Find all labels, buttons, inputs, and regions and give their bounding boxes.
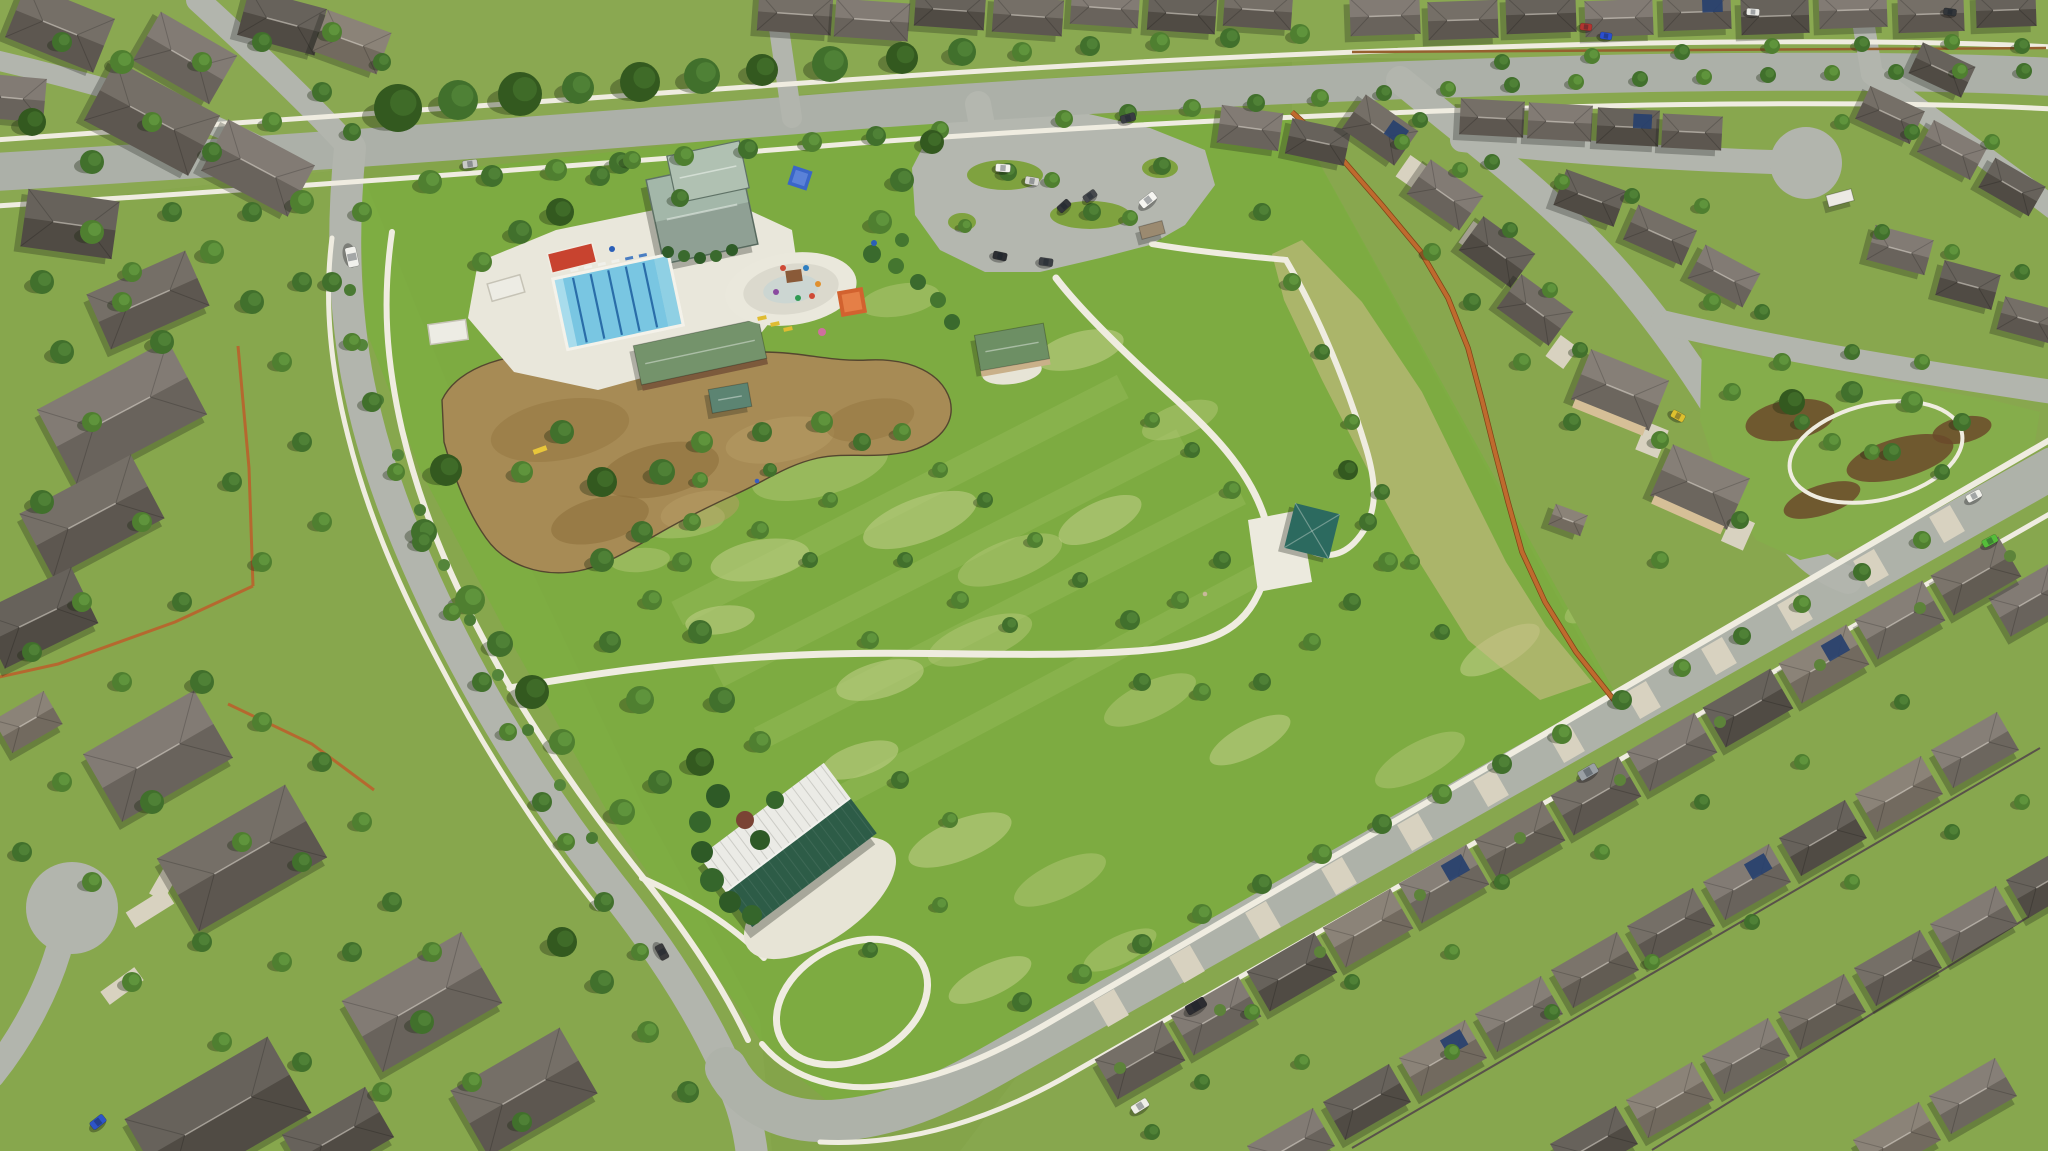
tree-highlight (1429, 245, 1439, 255)
tree-highlight (1765, 69, 1774, 78)
tree-highlight (573, 76, 591, 94)
tree-highlight (488, 168, 500, 180)
house-roof (1578, 0, 1653, 43)
tree-highlight (1879, 226, 1888, 235)
tree-highlight (697, 474, 706, 483)
tree-highlight (329, 274, 340, 285)
tree-highlight (1219, 553, 1229, 563)
tree-highlight (947, 814, 956, 823)
shrub (694, 252, 706, 264)
tree-highlight (1779, 355, 1789, 365)
tree-highlight (552, 162, 564, 174)
tree-highlight (1909, 126, 1918, 135)
tree-highlight (1127, 612, 1138, 623)
tree-highlight (1701, 71, 1710, 80)
tree-highlight (129, 264, 140, 275)
house-roof (827, 0, 910, 48)
tree-highlight (148, 793, 161, 806)
tree-highlight (1259, 675, 1269, 685)
shrub (944, 314, 960, 330)
tree-highlight (558, 423, 571, 436)
shrub (1814, 659, 1826, 671)
tree-highlight (1848, 384, 1860, 396)
tree-highlight (539, 794, 550, 805)
tree-highlight (1139, 675, 1149, 685)
tree-highlight (937, 464, 946, 473)
tree-highlight (957, 593, 967, 603)
tree-highlight (27, 111, 42, 126)
shrub (522, 724, 534, 736)
tree-highlight (465, 588, 482, 605)
tree-highlight (1577, 344, 1586, 353)
tree-highlight (756, 734, 768, 746)
tree-highlight (1379, 486, 1388, 495)
house-roof (1499, 0, 1576, 40)
tree-highlight (1599, 846, 1608, 855)
tree-highlight (1679, 46, 1688, 55)
shrub (414, 504, 426, 516)
shrub (742, 905, 762, 925)
tree-highlight (899, 425, 909, 435)
house-roof (1343, 0, 1420, 42)
cul-de-sac-bulb (26, 862, 118, 954)
tree-highlight (519, 1114, 530, 1125)
tree-highlight (1399, 136, 1408, 145)
tree-highlight (1297, 26, 1308, 37)
tree-highlight (1829, 435, 1839, 445)
tree-highlight (759, 424, 770, 435)
tree-highlight (677, 191, 687, 201)
shrub (863, 245, 881, 263)
trash-bin (871, 240, 877, 246)
house-roof (1421, 0, 1498, 46)
tree-highlight (1849, 346, 1858, 355)
tree-highlight (2021, 65, 2030, 74)
tree-highlight (656, 773, 669, 786)
tree-highlight (319, 84, 330, 95)
tree-highlight (38, 493, 51, 506)
tree-highlight (1919, 356, 1928, 365)
tree-highlight (818, 414, 830, 426)
tree-highlight (1149, 1126, 1158, 1135)
tree-highlight (1549, 1006, 1558, 1015)
tree-highlight (208, 243, 221, 256)
tree-highlight (598, 551, 611, 564)
shade-canopy (428, 319, 468, 344)
tree-highlight (658, 462, 672, 476)
tree-highlight (118, 53, 131, 66)
tree-highlight (757, 523, 767, 533)
tree-highlight (827, 494, 836, 503)
tree-highlight (1149, 414, 1158, 423)
tree-highlight (119, 674, 130, 685)
tree-highlight (695, 751, 710, 766)
tree-highlight (1519, 355, 1529, 365)
tree-highlight (928, 133, 941, 146)
tree-highlight (1919, 533, 1929, 543)
tree-highlight (1547, 284, 1556, 293)
tree-highlight (982, 494, 991, 503)
tree-highlight (1657, 433, 1667, 443)
tree-highlight (1157, 34, 1168, 45)
tree-highlight (1199, 906, 1210, 917)
tree-highlight (1199, 1076, 1208, 1085)
tree-highlight (684, 1084, 696, 1096)
house-roof (1891, 0, 1964, 39)
tree-highlight (1709, 295, 1719, 305)
tree-highlight (248, 293, 261, 306)
tree-highlight (1729, 385, 1739, 395)
tree-highlight (873, 128, 884, 139)
tree-highlight (1379, 816, 1390, 827)
tree-highlight (89, 414, 100, 425)
tree-highlight (79, 594, 90, 605)
spray-feature (780, 265, 786, 271)
tree-highlight (807, 554, 816, 563)
tree-highlight (897, 46, 915, 64)
house-roof (1210, 104, 1283, 157)
tree-highlight (1889, 445, 1899, 455)
tree-highlight (129, 974, 140, 985)
shrub (492, 669, 504, 681)
shrub (766, 791, 784, 809)
house-roof (1812, 0, 1887, 35)
house-roof (1140, 0, 1217, 40)
tree-highlight (298, 193, 311, 206)
house-roof (985, 0, 1064, 42)
tree-highlight (1289, 275, 1299, 285)
tree-highlight (1349, 976, 1358, 985)
tree-highlight (633, 67, 655, 89)
tree-highlight (1469, 295, 1479, 305)
tree-highlight (558, 732, 572, 746)
tree-highlight (555, 201, 570, 216)
tree-highlight (479, 254, 490, 265)
tree-highlight (1737, 513, 1747, 523)
tree-highlight (390, 90, 416, 116)
tree-highlight (259, 554, 270, 565)
shrub (1114, 1062, 1126, 1074)
shrub (1414, 889, 1426, 901)
shrub (888, 258, 904, 274)
house-roof (14, 188, 120, 265)
shrub (586, 832, 598, 844)
house-roof (1521, 102, 1593, 148)
water-bucket-tower (785, 269, 803, 283)
tree-highlight (897, 773, 907, 783)
tree-highlight (19, 844, 30, 855)
tree-highlight (698, 434, 710, 446)
tree-highlight (359, 814, 370, 825)
tree-highlight (1019, 44, 1030, 55)
tree-highlight (1079, 966, 1090, 977)
tree-highlight (963, 221, 971, 229)
tree-highlight (449, 605, 459, 615)
tree-highlight (429, 944, 440, 955)
tree-highlight (1839, 116, 1848, 125)
tree-highlight (681, 148, 692, 159)
shrub (678, 250, 690, 262)
trash-bin (609, 246, 615, 252)
shrub (930, 292, 946, 308)
tree-highlight (1061, 112, 1071, 122)
shrub (1214, 1004, 1226, 1016)
tree-highlight (451, 85, 473, 107)
tree-highlight (1657, 553, 1667, 563)
tree-highlight (629, 153, 639, 163)
shrub (1314, 946, 1326, 958)
tree-highlight (1199, 685, 1209, 695)
tree-highlight (1445, 83, 1454, 92)
house-roof (907, 0, 986, 36)
tree-highlight (1949, 36, 1958, 45)
shrub (910, 274, 926, 290)
tree-highlight (1159, 159, 1169, 169)
tree-highlight (469, 1074, 480, 1085)
tree-highlight (88, 153, 101, 166)
shrub (1514, 832, 1526, 844)
tree-highlight (1989, 136, 1998, 145)
tree-highlight (1699, 796, 1708, 805)
tree-highlight (638, 524, 650, 536)
tree-highlight (119, 294, 130, 305)
tree-highlight (299, 1054, 310, 1065)
tree-highlight (1799, 597, 1809, 607)
tree-highlight (229, 474, 240, 485)
shrub (1614, 774, 1626, 786)
tree-highlight (1439, 626, 1448, 635)
tree-highlight (393, 465, 403, 475)
cul-de-sac-bulb (1770, 127, 1842, 199)
tree-highlight (1457, 164, 1466, 173)
tree-highlight (319, 754, 330, 765)
tree-highlight (299, 274, 310, 285)
shrub (691, 841, 713, 863)
tree-highlight (1259, 876, 1270, 887)
shrub (438, 559, 450, 571)
house-roof (1655, 113, 1723, 156)
tree-highlight (1859, 565, 1869, 575)
tree-highlight (601, 894, 612, 905)
tree-highlight (1499, 756, 1510, 767)
tree-highlight (1189, 101, 1199, 111)
shrub (689, 811, 711, 833)
tree-highlight (1409, 556, 1418, 565)
tree-highlight (299, 854, 310, 865)
tree-highlight (1032, 534, 1041, 543)
solar-panels (1702, 0, 1723, 13)
house-roof (1063, 0, 1140, 34)
tree-highlight (259, 714, 270, 725)
person (755, 479, 760, 484)
shrub (719, 891, 741, 913)
shrub (1914, 602, 1926, 614)
spray-feature (773, 289, 779, 295)
tree-highlight (2019, 266, 2028, 275)
tree-highlight (179, 594, 190, 605)
tree-highlight (824, 50, 844, 70)
tree-highlight (1077, 574, 1086, 583)
tree-highlight (1499, 876, 1508, 885)
shrub (726, 244, 738, 256)
tree-highlight (158, 333, 171, 346)
tree-highlight (876, 213, 889, 226)
tree-highlight (526, 679, 545, 698)
tree-highlight (1869, 446, 1878, 455)
tree-highlight (1637, 73, 1646, 82)
tree-highlight (319, 514, 330, 525)
tree-highlight (1349, 595, 1359, 605)
tree-highlight (369, 394, 380, 405)
tree-highlight (1619, 692, 1630, 703)
tree-highlight (1259, 205, 1269, 215)
tree-highlight (937, 123, 947, 133)
tree-highlight (59, 34, 70, 45)
tree-highlight (1559, 726, 1570, 737)
tree-highlight (745, 141, 756, 152)
tree-highlight (635, 689, 650, 704)
aerial-photo-suburban-park (0, 0, 2048, 1151)
tree-highlight (1569, 415, 1579, 425)
tree-highlight (58, 343, 71, 356)
tree-highlight (902, 554, 911, 563)
tree-highlight (1087, 38, 1098, 49)
house-roof (750, 0, 833, 42)
tree-highlight (1349, 416, 1358, 425)
tree-highlight (516, 223, 529, 236)
tree-highlight (199, 54, 210, 65)
tree-highlight (88, 223, 101, 236)
tree-highlight (1007, 619, 1016, 628)
tree-highlight (557, 930, 574, 947)
tree-highlight (89, 874, 100, 885)
tree-highlight (1381, 87, 1390, 96)
house-roof (1656, 0, 1731, 37)
tree-highlight (1759, 306, 1768, 315)
tree-highlight (1829, 67, 1838, 76)
tree-highlight (1049, 174, 1058, 183)
tree-highlight (1489, 156, 1498, 165)
house-roof (1969, 0, 2036, 34)
tree-highlight (1769, 40, 1778, 49)
tree-highlight (1139, 936, 1150, 947)
tree-highlight (1319, 346, 1328, 355)
tree-highlight (1385, 554, 1396, 565)
tree-highlight (389, 894, 400, 905)
person (1203, 592, 1208, 597)
shrub (392, 449, 404, 461)
tree-highlight (1345, 462, 1356, 473)
tree-highlight (898, 171, 911, 184)
tree-highlight (718, 690, 732, 704)
tree-highlight (1509, 79, 1518, 88)
tree-highlight (1253, 96, 1263, 106)
shrub (464, 614, 476, 626)
tree-highlight (1189, 444, 1198, 453)
tree-highlight (359, 204, 370, 215)
tree-highlight (1299, 1056, 1308, 1065)
house-roof (1734, 0, 1809, 41)
tree-highlight (1739, 629, 1749, 639)
tree-highlight (1507, 224, 1516, 233)
tree-highlight (279, 954, 290, 965)
tree-highlight (279, 354, 290, 365)
tree-highlight (563, 835, 573, 845)
tree-highlight (239, 834, 250, 845)
tree-highlight (259, 34, 270, 45)
tree-highlight (679, 554, 690, 565)
solar-panels (1633, 114, 1652, 129)
tree-highlight (418, 1013, 431, 1026)
tree-highlight (597, 470, 614, 487)
tree-highlight (1559, 176, 1568, 185)
tree-highlight (867, 633, 877, 643)
house-roof (1453, 98, 1525, 144)
shrub (710, 250, 722, 262)
tree-highlight (29, 644, 40, 655)
tree-highlight (139, 514, 150, 525)
tree-highlight (644, 1024, 656, 1036)
tree-highlight (518, 464, 530, 476)
tree-highlight (299, 434, 310, 445)
tree-highlight (1127, 212, 1136, 221)
shrub (750, 830, 770, 850)
canopy-top (842, 292, 863, 313)
tree-highlight (479, 674, 490, 685)
tree-highlight (269, 114, 280, 125)
tree-highlight (426, 173, 439, 186)
tree-highlight (1449, 1046, 1458, 1055)
tree-highlight (1799, 756, 1808, 765)
shrub (706, 784, 730, 808)
tree-highlight (379, 55, 389, 65)
tree-highlight (696, 623, 709, 636)
tree-highlight (637, 945, 647, 955)
tree-highlight (696, 62, 716, 82)
tree-highlight (1227, 30, 1238, 41)
tree-highlight (349, 125, 359, 135)
tree-highlight (1957, 65, 1966, 74)
tree-highlight (1859, 38, 1868, 47)
tree-highlight (598, 973, 611, 986)
tree-highlight (1309, 635, 1319, 645)
house-roof (1590, 107, 1660, 153)
tree-highlight (1449, 946, 1458, 955)
shrub (554, 779, 566, 791)
tree-highlight (1317, 91, 1327, 101)
tree-highlight (1949, 246, 1958, 255)
tree-highlight (1699, 200, 1708, 209)
tree-highlight (219, 1034, 230, 1045)
tree-highlight (768, 465, 776, 473)
spray-feature (809, 293, 815, 299)
tree-highlight (1439, 786, 1450, 797)
shrub (344, 284, 356, 296)
play-feature (818, 328, 826, 336)
tree-highlight (1849, 876, 1858, 885)
tree-highlight (149, 114, 160, 125)
tree-highlight (1499, 56, 1508, 65)
tree-highlight (1417, 114, 1426, 123)
tree-highlight (606, 634, 618, 646)
tree-highlight (1939, 466, 1948, 475)
tree-highlight (419, 534, 430, 545)
tree-highlight (1573, 76, 1582, 85)
tree-highlight (38, 273, 51, 286)
tree-highlight (1749, 916, 1758, 925)
tree-highlight (1649, 956, 1658, 965)
tree-highlight (1249, 1006, 1258, 1015)
